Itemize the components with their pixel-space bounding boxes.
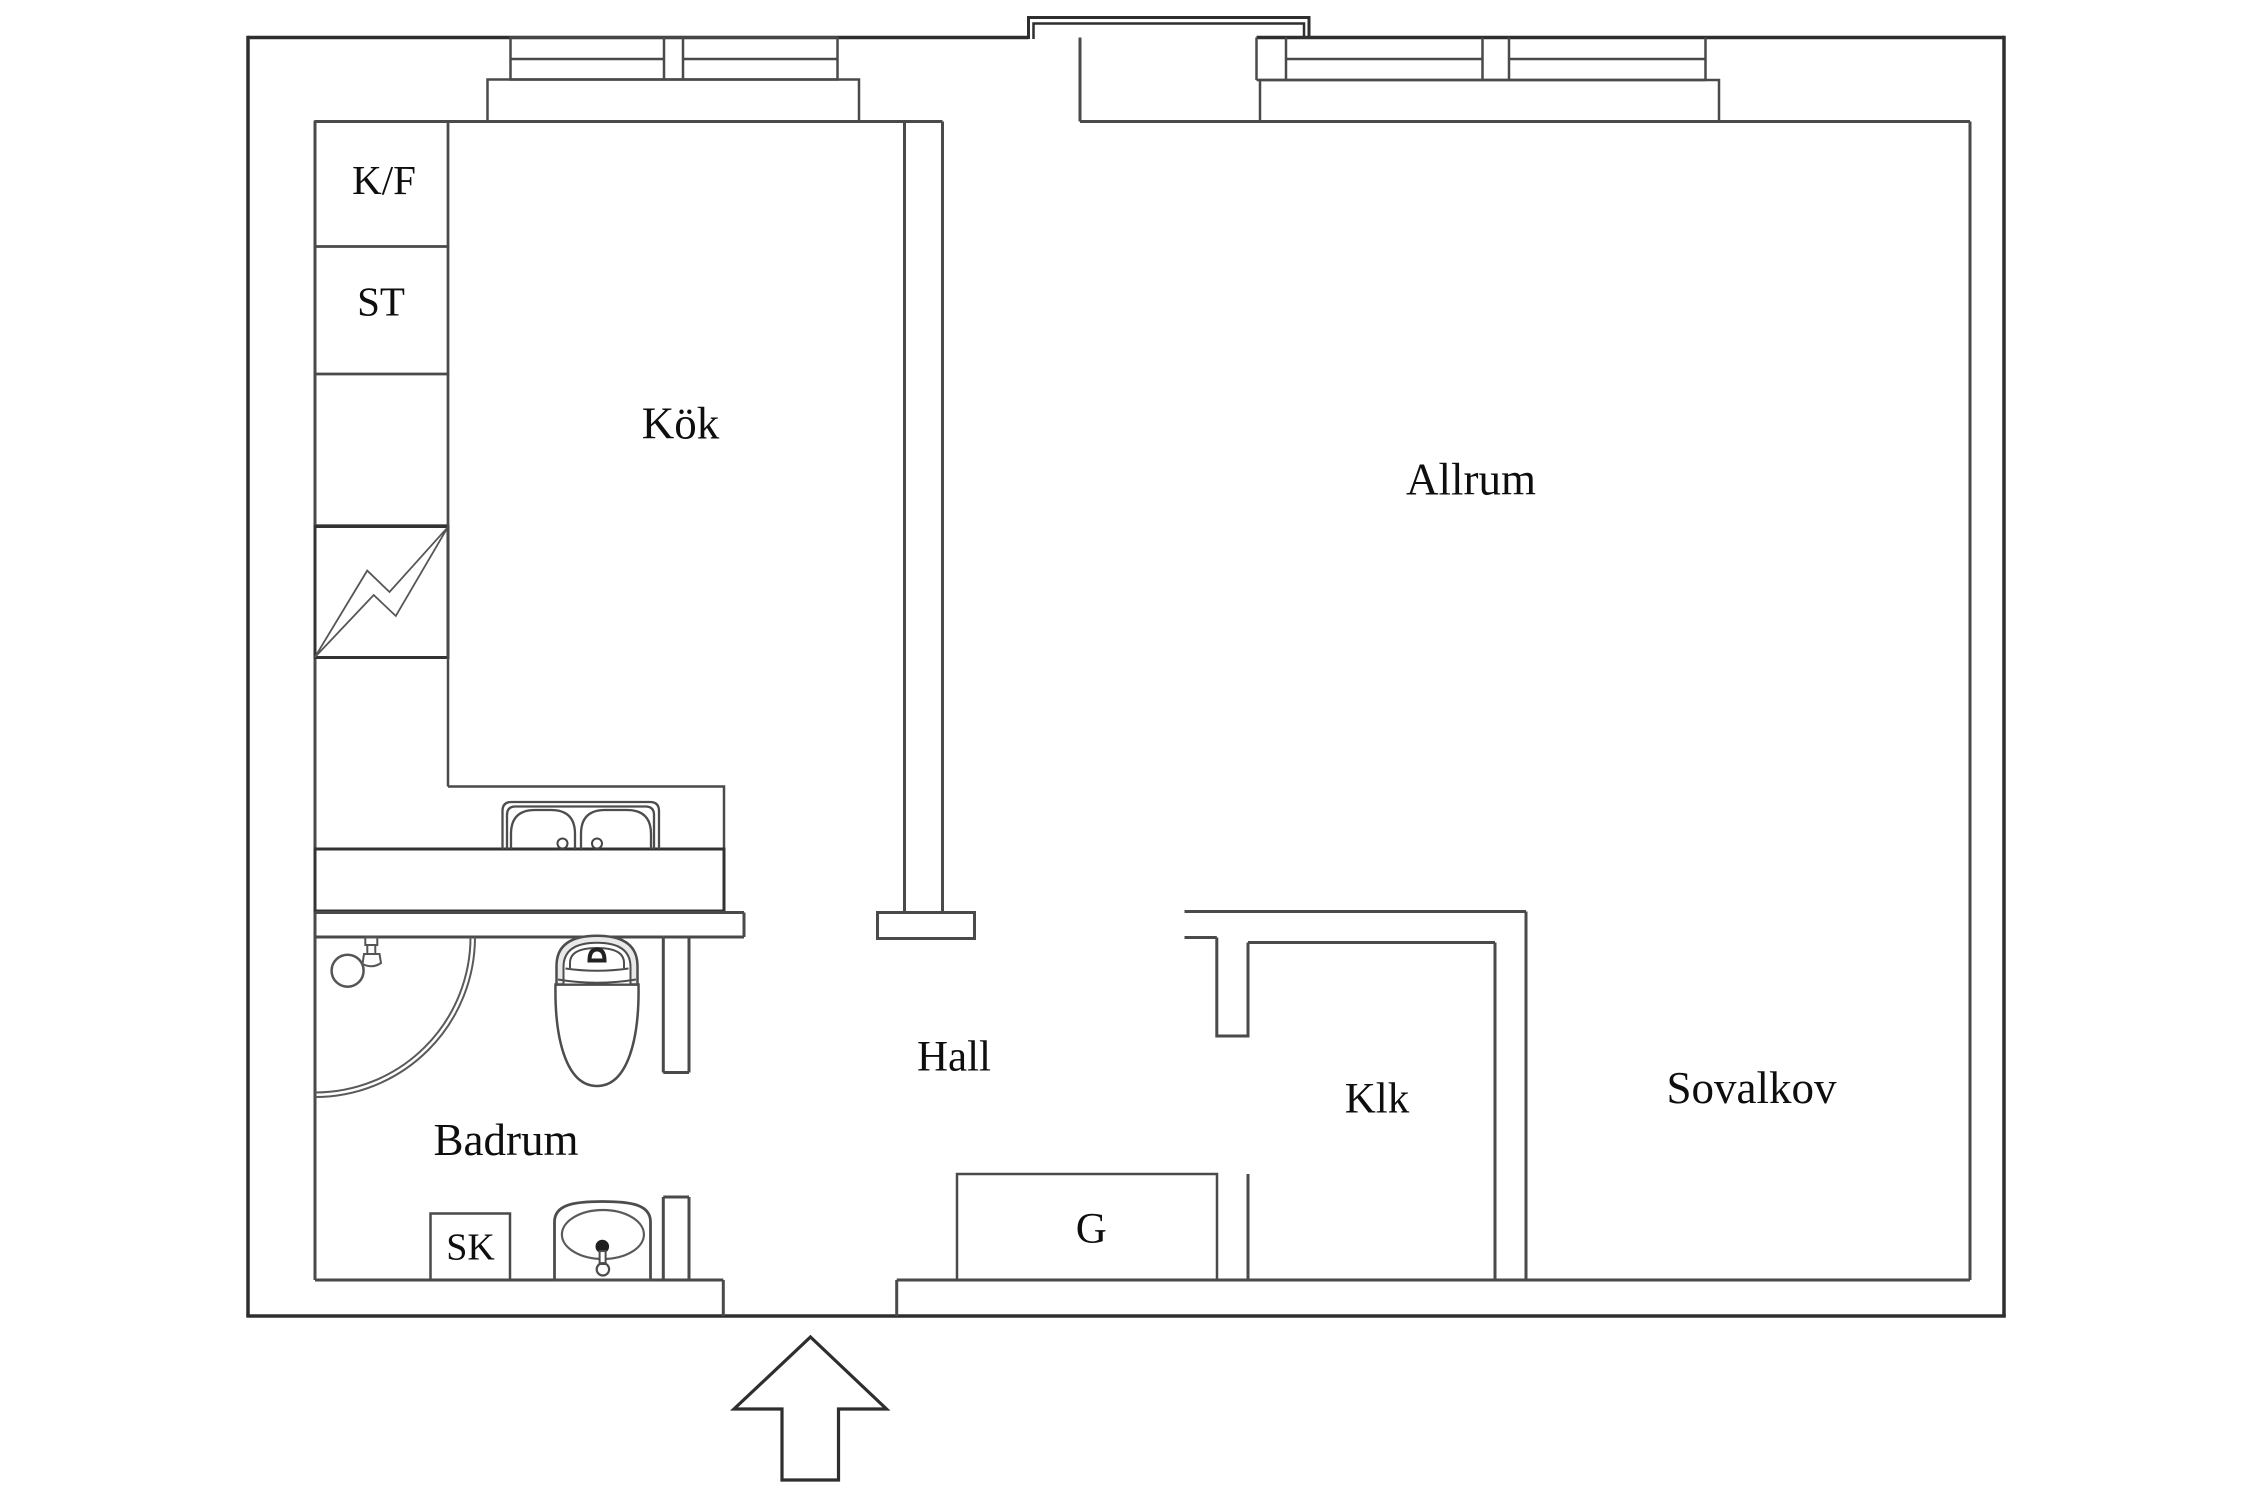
svg-text:ST: ST [357, 279, 405, 325]
svg-text:Allrum: Allrum [1406, 455, 1536, 505]
svg-text:Hall: Hall [917, 1034, 991, 1081]
svg-text:Sovalkov: Sovalkov [1666, 1063, 1837, 1113]
svg-text:Kök: Kök [642, 399, 720, 449]
svg-text:Klk: Klk [1345, 1076, 1410, 1123]
svg-text:G: G [1076, 1206, 1107, 1253]
svg-text:SK: SK [446, 1227, 495, 1269]
svg-text:Badrum: Badrum [434, 1115, 579, 1165]
svg-text:K/F: K/F [352, 157, 416, 203]
